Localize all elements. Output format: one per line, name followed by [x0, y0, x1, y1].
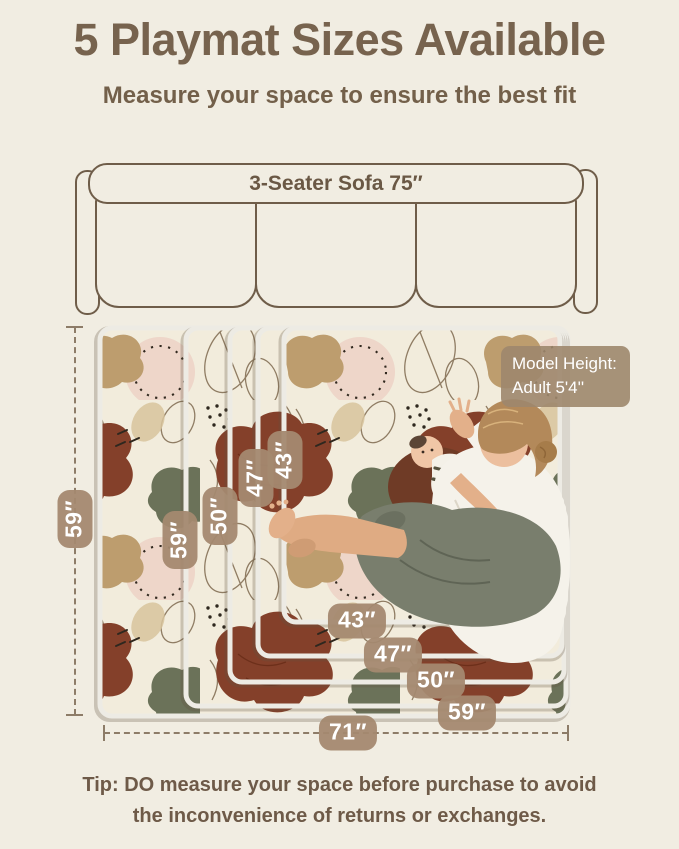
outer-width-badge: 71″	[319, 716, 377, 751]
sofa-size-label: 3-Seater Sofa 75″	[249, 172, 422, 196]
mat-height-badge: 50″	[203, 487, 238, 545]
sofa-backrest: 3-Seater Sofa 75″	[88, 163, 584, 204]
dimension-tick	[66, 714, 83, 716]
mat-height-badge: 43″	[268, 431, 303, 489]
tip-line1: Tip: DO measure your space before purcha…	[0, 770, 679, 801]
playmat-size-infographic: 5 Playmat Sizes Available Measure your s…	[0, 0, 679, 849]
model-height-line1: Model Height:	[512, 352, 624, 376]
model-height-line2: Adult 5'4''	[512, 376, 624, 400]
dimension-tick	[567, 725, 569, 741]
tip-text: Tip: DO measure your space before purcha…	[0, 770, 679, 832]
model-height-badge: Model Height: Adult 5'4''	[501, 346, 630, 407]
mat-width-badge: 50″	[407, 664, 465, 699]
outer-height-badge: 59″	[58, 490, 93, 548]
dimension-tick	[103, 725, 105, 741]
dimension-tick	[66, 326, 83, 328]
mat-width-badge: 59″	[438, 696, 496, 731]
mat-width-badge: 43″	[328, 604, 386, 639]
mat-height-badge: 59″	[163, 511, 198, 569]
tip-line2: the inconvenience of returns or exchange…	[0, 801, 679, 832]
